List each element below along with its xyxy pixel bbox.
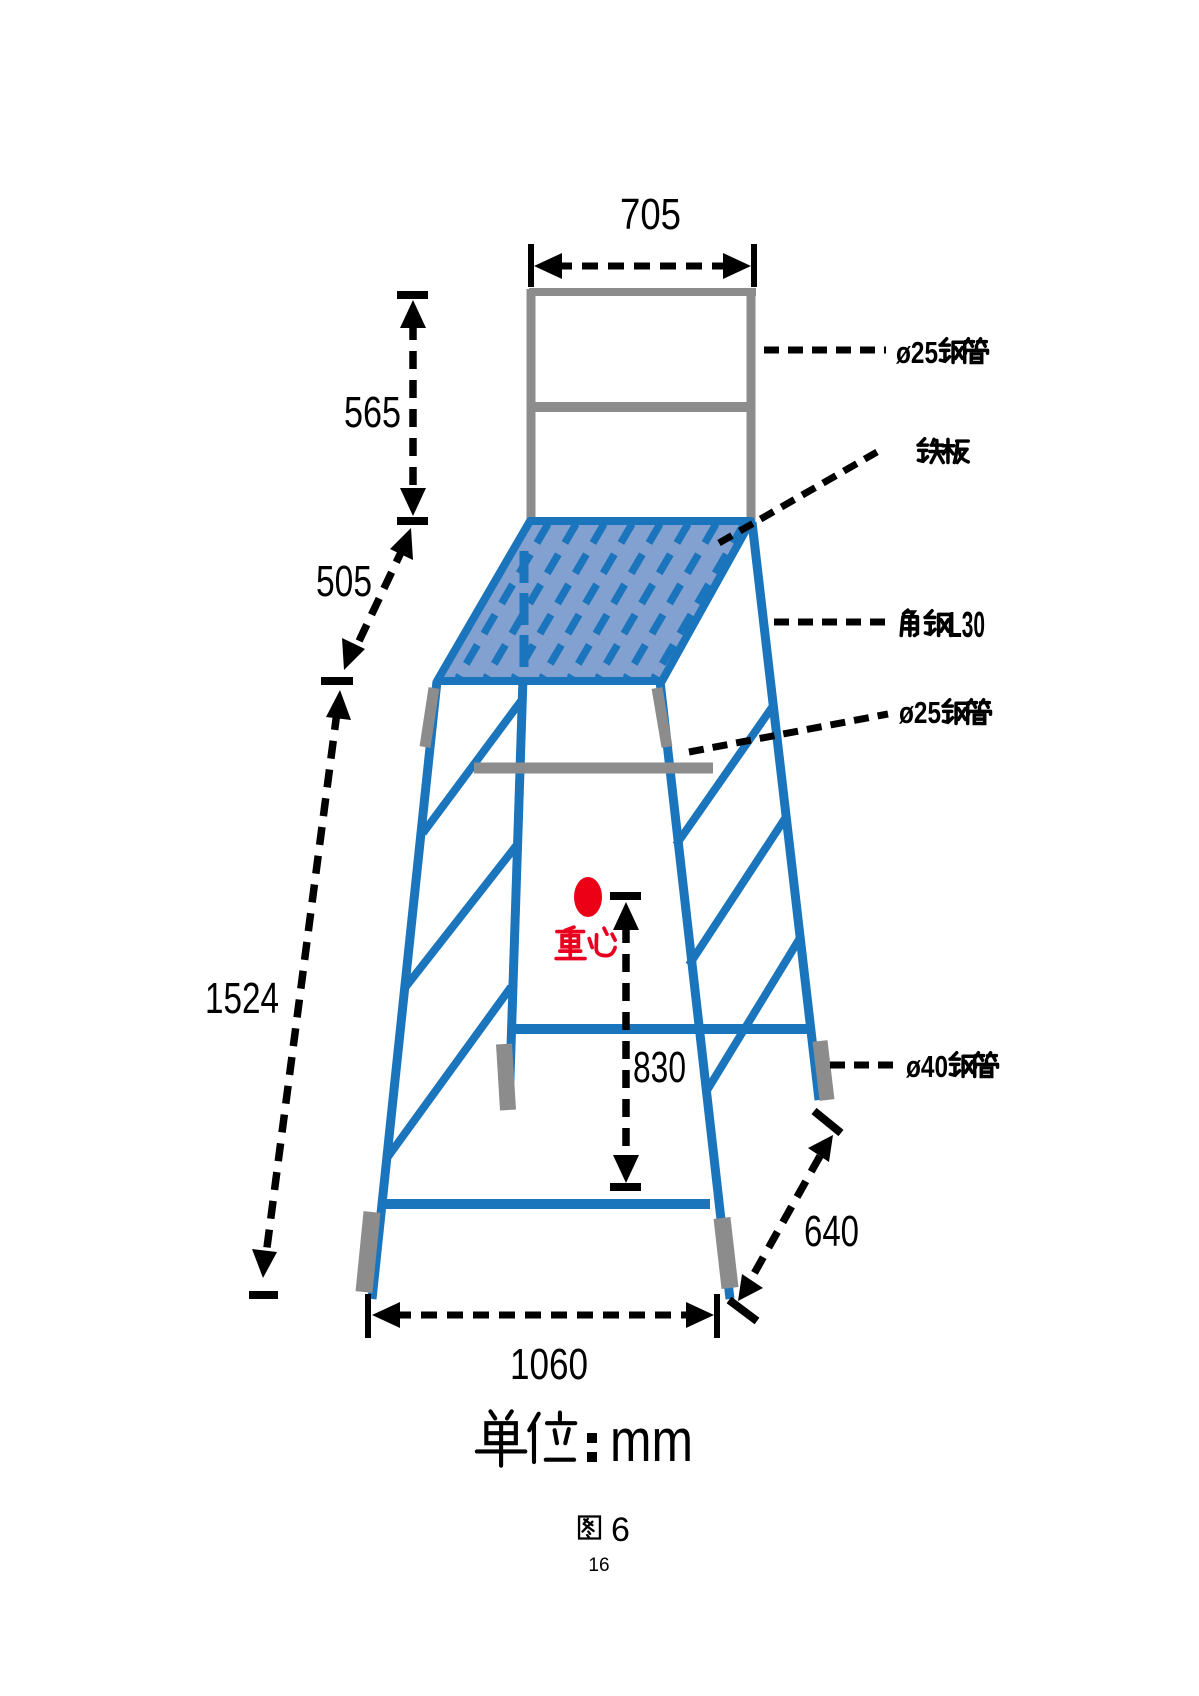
svg-text:565: 565	[344, 388, 401, 437]
svg-text:ø25: ø25	[899, 695, 941, 730]
svg-text:16: 16	[588, 1555, 609, 1576]
svg-text:505: 505	[316, 557, 372, 606]
svg-text:640: 640	[804, 1207, 859, 1256]
svg-text:L30: L30	[949, 604, 985, 645]
svg-text:1060: 1060	[510, 1340, 588, 1389]
svg-text:830: 830	[633, 1043, 686, 1092]
svg-text:ø25: ø25	[896, 335, 938, 370]
svg-text:1524: 1524	[205, 974, 279, 1023]
svg-text:6: 6	[611, 1511, 630, 1549]
svg-text:705: 705	[620, 190, 681, 239]
svg-text:ø40: ø40	[906, 1049, 948, 1084]
svg-text:mm: mm	[610, 1407, 693, 1474]
